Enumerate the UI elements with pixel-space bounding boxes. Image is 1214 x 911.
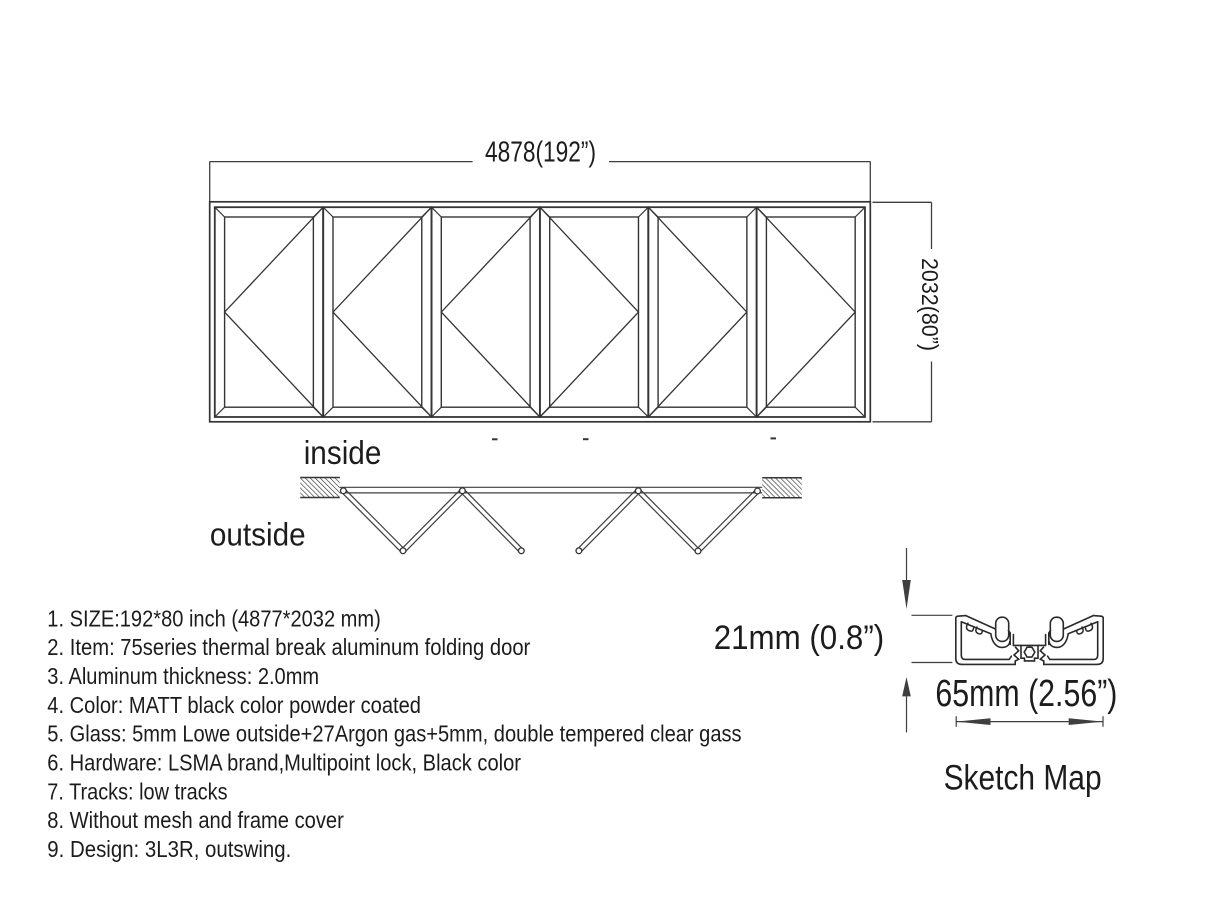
svg-text:65mm (2.56”): 65mm (2.56”) xyxy=(935,673,1117,715)
svg-text:2. Item: 75series thermal brea: 2. Item: 75series thermal break aluminum… xyxy=(47,634,530,660)
svg-text:outside: outside xyxy=(210,516,306,552)
svg-text:4878(192”): 4878(192”) xyxy=(485,137,596,169)
svg-text:2032(80”): 2032(80”) xyxy=(917,258,943,351)
svg-text:5. Glass: 5mm Lowe outside+27A: 5. Glass: 5mm Lowe outside+27Argon gas+5… xyxy=(47,721,741,747)
svg-text:4. Color: MATT black color pow: 4. Color: MATT black color powder coated xyxy=(47,692,421,718)
svg-text:7. Tracks: low tracks: 7. Tracks: low tracks xyxy=(47,778,227,804)
svg-text:1. SIZE:192*80 inch (4877*2032: 1. SIZE:192*80 inch (4877*2032 mm) xyxy=(47,605,381,631)
svg-text:9. Design: 3L3R, outswing.: 9. Design: 3L3R, outswing. xyxy=(47,836,291,862)
svg-text:3. Aluminum thickness: 2.0mm: 3. Aluminum thickness: 2.0mm xyxy=(47,663,319,689)
svg-text:inside: inside xyxy=(304,434,382,471)
svg-text:Sketch Map: Sketch Map xyxy=(944,759,1102,798)
svg-text:8. Without mesh and frame cove: 8. Without mesh and frame cover xyxy=(47,807,344,833)
svg-text:21mm (0.8”): 21mm (0.8”) xyxy=(714,619,885,657)
svg-text:6. Hardware: LSMA brand,Multip: 6. Hardware: LSMA brand,Multipoint lock,… xyxy=(47,750,521,776)
